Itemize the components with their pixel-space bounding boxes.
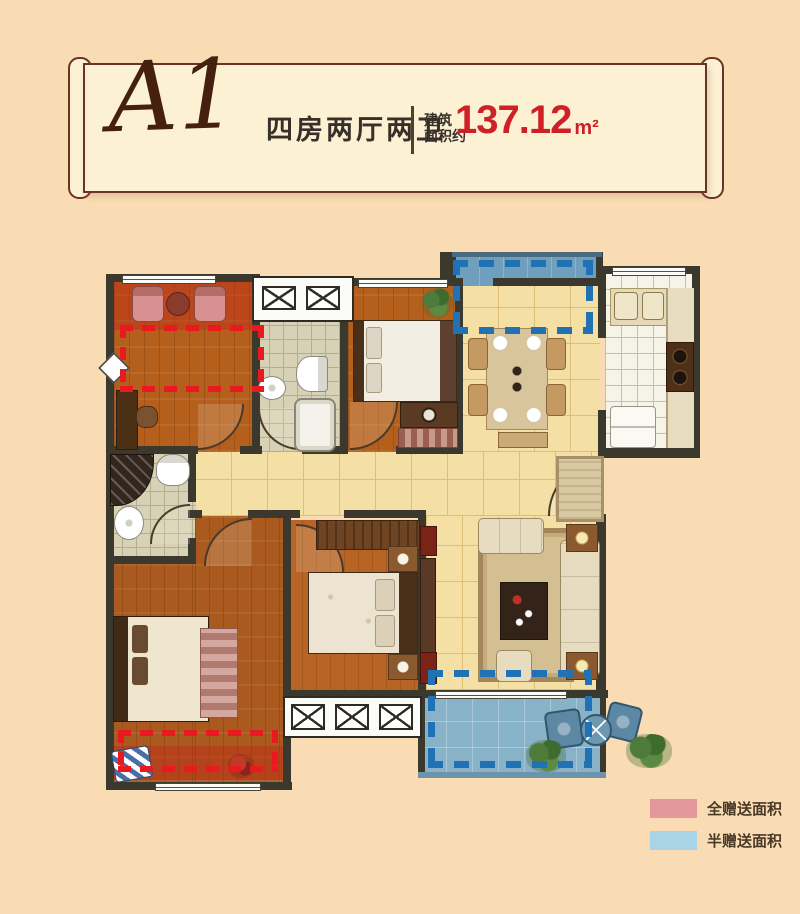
legend-swatch-full-gift: [650, 799, 697, 818]
wall-kitchen-bottom: [598, 448, 700, 458]
dining-chair-2: [468, 384, 488, 416]
master-bed-pillow-1: [375, 579, 395, 611]
area-unit: m²: [574, 118, 598, 138]
gift-dash-bedroom3-left: [118, 730, 124, 772]
master-nightstand-2: [388, 654, 418, 680]
floor-plan: [100, 252, 706, 797]
study-armchair-2: [194, 286, 226, 322]
window-study: [122, 275, 216, 284]
gift-dash-study-bottom: [120, 386, 264, 392]
window-living-balcony: [435, 691, 567, 699]
wall-balcony-t-top: [452, 252, 602, 257]
wall-bath2-bedroom3: [106, 556, 196, 564]
plan-code: A1: [106, 46, 240, 146]
halfgift-dash-bottom-bottom: [428, 761, 592, 768]
gift-dash-bedroom3-right: [272, 730, 278, 772]
balcony-plant-2-icon: [626, 734, 672, 768]
dining-chair-4: [546, 384, 566, 416]
wall-bath1-bedroom2: [340, 310, 348, 454]
shaft-top-xbox-1: [262, 286, 296, 310]
bedroom3-rug: [200, 628, 238, 718]
bedroom3-bed-pillow-1: [132, 625, 148, 653]
dining-chair-1: [468, 338, 488, 370]
bath2-sink: [114, 506, 144, 540]
header-divider: [411, 106, 414, 154]
halfgift-dash-top-top: [453, 260, 593, 267]
area-value: 137.12: [455, 100, 571, 140]
shaft-bottom-xbox-3: [379, 704, 413, 730]
study-desk: [116, 390, 138, 450]
layout-label: 四房两厅两卫: [266, 108, 446, 147]
bath1-tub: [294, 398, 336, 452]
kitchen-stove: [666, 342, 694, 392]
wall-hall-bedrooms-c: [344, 510, 424, 518]
halfgift-dash-top-bottom: [453, 327, 593, 334]
bath1-toilet: [296, 356, 328, 392]
hallway-floor: [195, 452, 600, 516]
shaft-bottom-xbox-2: [335, 704, 369, 730]
halfgift-dash-bottom-right: [585, 670, 592, 768]
entry-rug: [556, 456, 604, 522]
living-lamp-table-1: [566, 524, 598, 552]
study-desk-chair: [136, 406, 158, 428]
bedroom2-bed-pillow-1: [366, 327, 382, 359]
dining-table: [486, 328, 548, 430]
bedroom3-bed: [113, 616, 209, 722]
gift-dash-bedroom3-top: [118, 730, 278, 736]
legend-label-half-gift: 半赠送面积: [707, 830, 782, 851]
gift-dash-study-right: [258, 325, 264, 392]
wall-bedroom3-master: [283, 510, 291, 790]
halfgift-dash-bottom-top: [428, 670, 592, 677]
legend: 全赠送面积 半赠送面积: [650, 798, 782, 862]
window-bedroom3: [155, 783, 261, 791]
living-coffee-table: [500, 582, 548, 640]
legend-label-full-gift: 全赠送面积: [707, 798, 782, 819]
living-sofa-top: [478, 518, 544, 554]
bedroom2-dresser: [400, 402, 458, 428]
kitchen-fridge: [610, 406, 656, 448]
halfgift-dash-top-right: [586, 260, 593, 334]
wall-balcony-b-bottom: [418, 772, 606, 778]
bedroom2-bed-pillow-2: [366, 363, 382, 393]
title-banner: A1 四房两厅两卫 建筑 面积约 137.12 m²: [0, 0, 800, 210]
bedroom2-plant-icon: [422, 288, 452, 318]
legend-row-full-gift: 全赠送面积: [650, 798, 782, 819]
kitchen-sink-basin-2: [642, 292, 664, 320]
master-nightstand-1: [388, 546, 418, 572]
bath2-toilet: [156, 454, 190, 486]
kitchen-sink-basin-1: [614, 292, 638, 320]
dining-chair-3: [546, 338, 566, 370]
living-armchair: [496, 650, 532, 682]
master-bed: [308, 572, 418, 654]
wall-hall-bedrooms-a: [188, 510, 202, 518]
halfgift-dash-top-left: [453, 260, 460, 334]
area-group: 137.12 m²: [455, 100, 599, 140]
window-bedroom2: [358, 279, 448, 288]
study-armchair-1: [132, 286, 164, 322]
wall-hall-bedrooms-b: [248, 510, 300, 518]
living-cabinet-red-1: [420, 526, 437, 556]
shaft-bottom-xbox-1: [291, 704, 325, 730]
bedroom3-lounge-chair: [111, 745, 154, 783]
gift-dash-study-top: [120, 325, 264, 331]
legend-row-half-gift: 半赠送面积: [650, 830, 782, 851]
dining-bench: [498, 432, 548, 448]
shaft-top-xbox-2: [306, 286, 340, 310]
page-background: A1 四房两厅两卫 建筑 面积约 137.12 m²: [0, 0, 800, 914]
wall-balcony-t-sill: [493, 278, 600, 286]
bedroom2-bed: [353, 320, 457, 402]
window-kitchen: [612, 267, 686, 276]
gift-dash-bedroom3-bottom: [118, 766, 278, 772]
master-bed-pillow-2: [375, 615, 395, 647]
legend-swatch-half-gift: [650, 831, 697, 850]
wall-hall-top-b: [240, 446, 262, 454]
bedroom3-bed-pillow-2: [132, 657, 148, 685]
bedroom2-rug: [398, 428, 458, 448]
study-side-table: [166, 292, 190, 316]
gift-dash-study-left: [120, 325, 126, 392]
halfgift-dash-bottom-left: [428, 670, 435, 768]
